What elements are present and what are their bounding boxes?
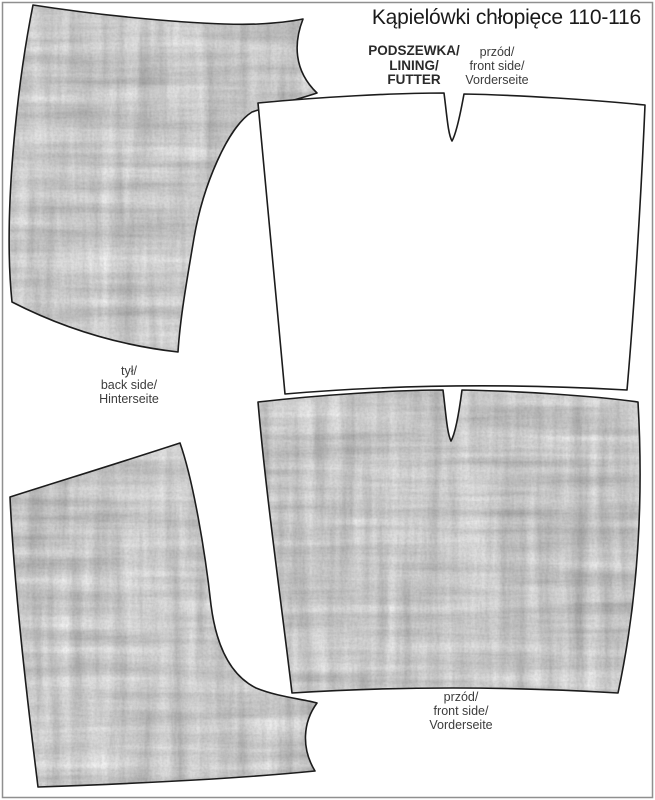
label-front-top-line-de: Vorderseite — [465, 73, 528, 87]
label-front-bottom: przód/ front side/ Vorderseite — [429, 690, 492, 732]
label-lining-line-pl: PODSZEWKA/ — [368, 44, 460, 59]
page-title: Kąpielówki chłopięce 110-116 — [372, 6, 641, 30]
label-back-line-de: Hinterseite — [99, 392, 159, 406]
label-front-bottom-line-en: front side/ — [429, 704, 492, 718]
label-front-bottom-line-pl: przód/ — [429, 690, 492, 704]
label-front-top: przód/ front side/ Vorderseite — [465, 45, 528, 87]
label-lining-line-de: FUTTER — [368, 73, 460, 88]
label-back-line-pl: tył/ — [99, 364, 159, 378]
label-lining: PODSZEWKA/ LINING/ FUTTER — [368, 44, 460, 88]
label-back: tył/ back side/ Hinterseite — [99, 364, 159, 406]
label-front-top-line-pl: przód/ — [465, 45, 528, 59]
label-lining-line-en: LINING/ — [368, 59, 460, 74]
label-front-bottom-line-de: Vorderseite — [429, 718, 492, 732]
label-back-line-en: back side/ — [99, 378, 159, 392]
label-front-top-line-en: front side/ — [465, 59, 528, 73]
pattern-piece-lining-front — [258, 93, 645, 394]
